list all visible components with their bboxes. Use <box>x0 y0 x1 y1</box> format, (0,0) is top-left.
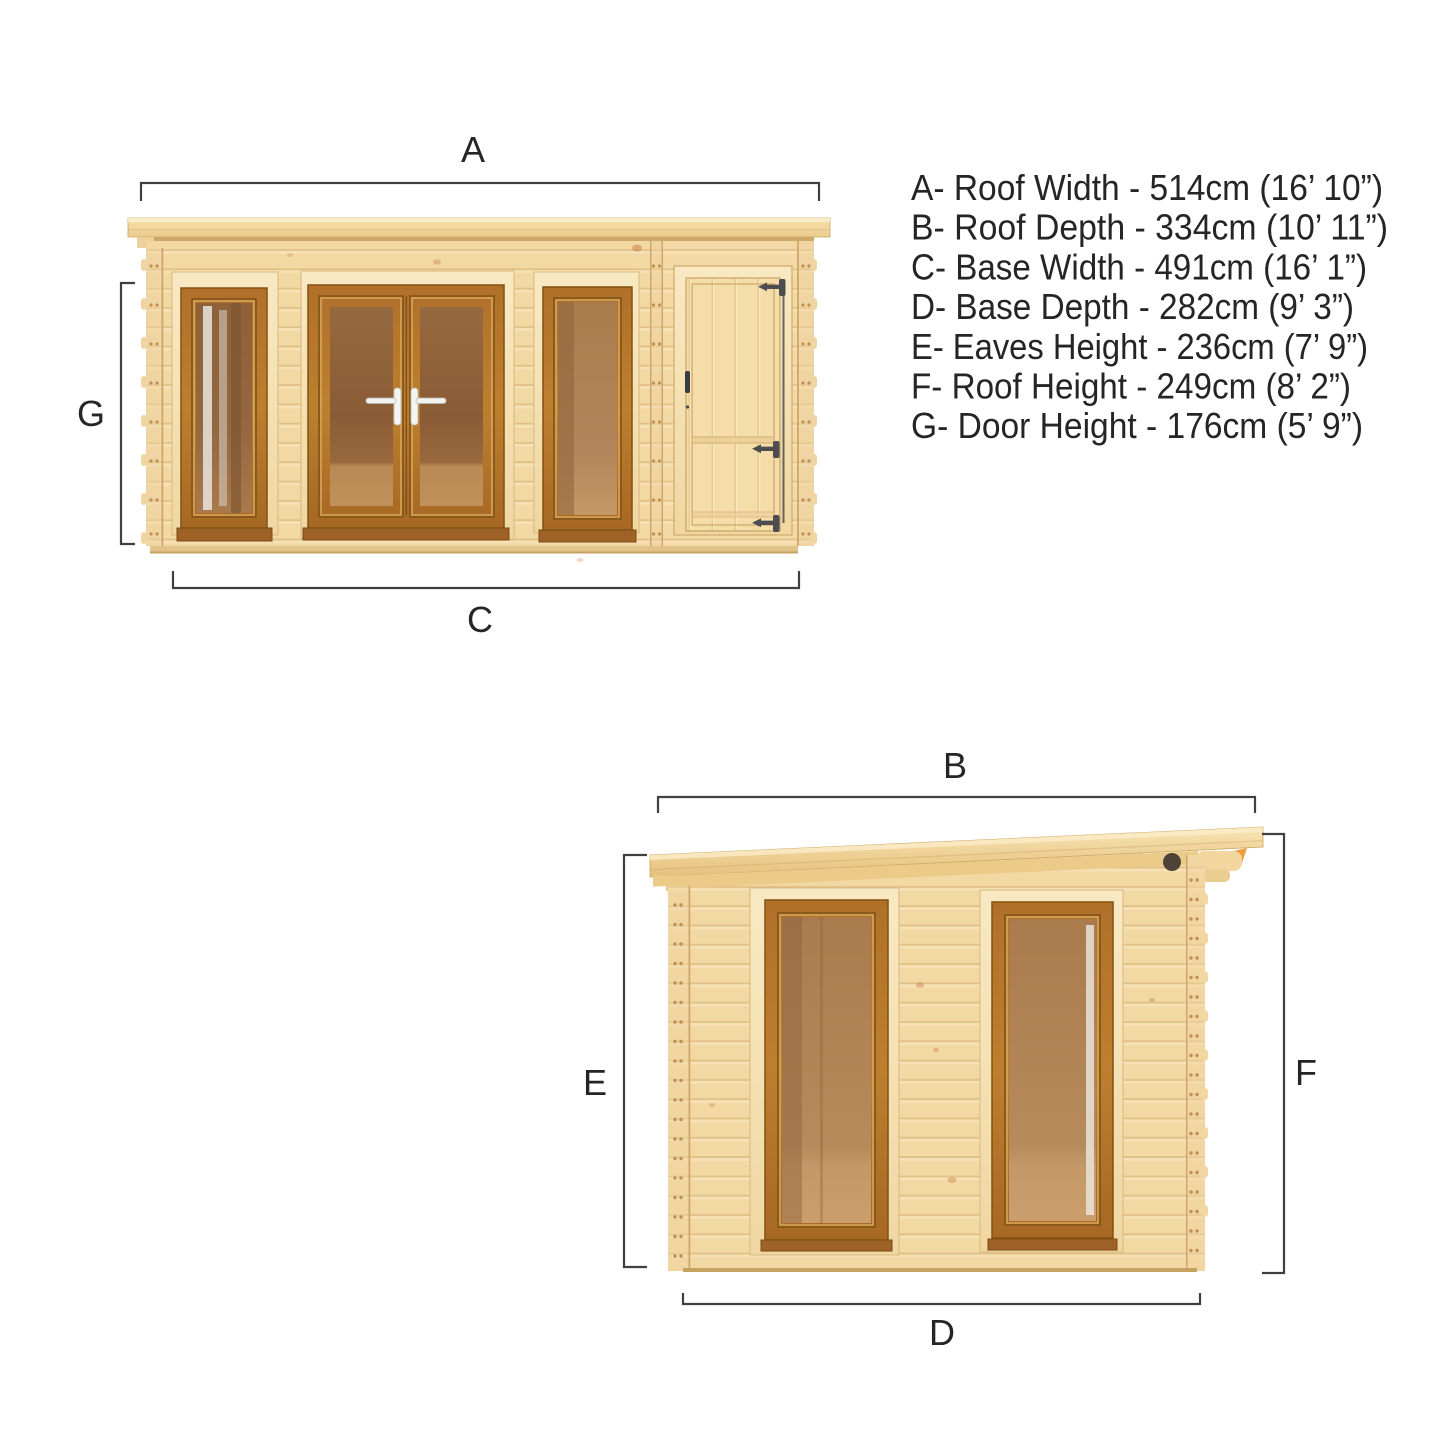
svg-text:C: C <box>467 599 493 640</box>
svg-text:G- Door Height - 176cm (5’ 9”): G- Door Height - 176cm (5’ 9”) <box>911 405 1363 446</box>
svg-text:B- Roof Depth - 334cm (10’ 11”: B- Roof Depth - 334cm (10’ 11”) <box>911 207 1388 248</box>
svg-text:E: E <box>583 1062 607 1103</box>
svg-text:C- Base Width - 491cm (16’ 1”): C- Base Width - 491cm (16’ 1”) <box>911 246 1367 287</box>
svg-text:D: D <box>929 1312 955 1353</box>
svg-text:B: B <box>943 745 967 786</box>
svg-text:D- Base Depth - 282cm (9’ 3”): D- Base Depth - 282cm (9’ 3”) <box>911 286 1354 327</box>
svg-text:F: F <box>1295 1052 1317 1093</box>
svg-text:A- Roof Width - 514cm (16’ 10”: A- Roof Width - 514cm (16’ 10”) <box>911 167 1383 208</box>
svg-text:A: A <box>461 129 485 170</box>
svg-text:G: G <box>77 393 105 434</box>
svg-text:E- Eaves Height - 236cm (7’ 9”: E- Eaves Height - 236cm (7’ 9”) <box>911 326 1368 367</box>
svg-text:F- Roof Height - 249cm (8’ 2”): F- Roof Height - 249cm (8’ 2”) <box>911 366 1351 407</box>
